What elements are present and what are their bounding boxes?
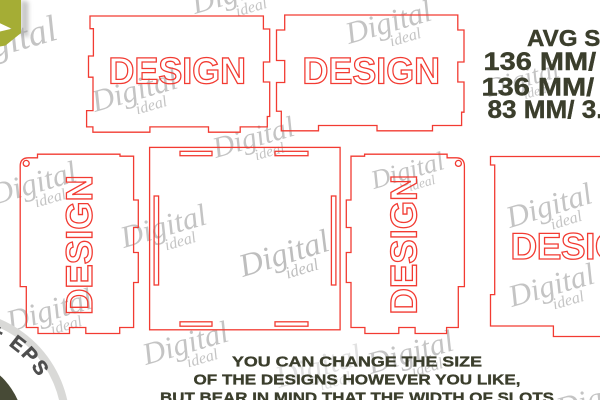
svg-text:136 MM/ 5.35: 136 MM/ 5.35 [484,48,600,76]
svg-text:DESIGN: DESIGN [59,175,100,315]
svg-text:YOU CAN CHANGE THE SIZE: YOU CAN CHANGE THE SIZE [232,354,482,371]
svg-text:DESIGN: DESIGN [384,175,425,315]
svg-text:DESIGN: DESIGN [303,50,441,91]
svg-text:OF THE DESIGNS HOWEVER YOU LIK: OF THE DESIGNS HOWEVER YOU LIKE, [194,372,521,389]
svg-text:BUT BEAR IN MIND THAT THE WIDT: BUT BEAR IN MIND THAT THE WIDTH OF SLOTS [160,389,554,400]
svg-text:DESIGN: DESIGN [511,226,600,267]
svg-text:DESIGN: DESIGN [109,50,247,91]
svg-text:83 MM/ 3.26: 83 MM/ 3.26 [488,96,600,124]
